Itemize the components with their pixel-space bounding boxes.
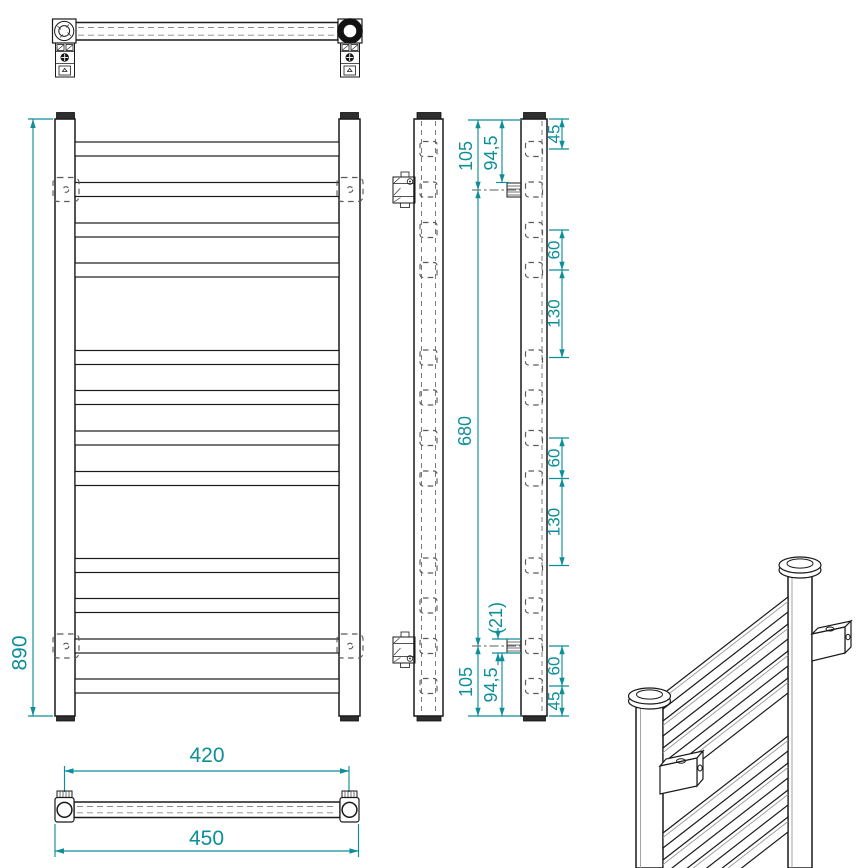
- dim-bottom-centers-label: 420: [189, 744, 224, 767]
- side-left-bracket-top: [393, 172, 415, 208]
- bottom-view-rail: [74, 802, 340, 818]
- dim-chain-label-2: 130: [544, 299, 563, 327]
- front-left-cap: [57, 113, 75, 120]
- dim-side-top-offset-label: 105: [456, 141, 476, 171]
- persp-right-bracket: [812, 621, 851, 661]
- dim-side-top-edge-label: 94,5: [481, 135, 501, 170]
- dim-bottom-centers: 420: [65, 744, 350, 792]
- bottom-right-connection: [340, 791, 359, 822]
- front-right-post: [339, 119, 360, 716]
- dim-chain-label-3: 60: [544, 449, 563, 468]
- dim-chain-label-6: 45: [544, 692, 563, 711]
- side-dimensions-middle: 105 94,5 680 105 94,5 (21): [455, 120, 522, 716]
- persp-right-cap: [779, 557, 821, 578]
- dim-chain-label-5: 60: [544, 657, 563, 676]
- dim-side-bottom-offset-label: 105: [456, 667, 476, 697]
- persp-rungs: [663, 597, 788, 868]
- dim-side-bottom-edge-label: 94,5: [481, 667, 501, 702]
- top-view-rail: [75, 23, 338, 41]
- dim-tube-size-label: (21): [486, 602, 506, 634]
- top-view-right-bracket: [341, 43, 360, 77]
- top-view: [53, 19, 363, 77]
- front-view: 890: [9, 113, 363, 722]
- front-right-foot: [341, 716, 359, 721]
- front-hidden-wall-brackets: [53, 178, 363, 659]
- top-view-left-post-cap: [53, 19, 77, 43]
- dim-front-height: 890: [9, 119, 53, 716]
- perspective-view: [629, 557, 852, 868]
- front-left-foot: [57, 716, 75, 721]
- dim-chain-label-0: 45: [544, 125, 563, 144]
- side-left-bracket-bottom: [393, 632, 415, 668]
- front-right-cap: [341, 113, 359, 120]
- front-left-post: [55, 119, 75, 716]
- side-view-left-post: [393, 113, 443, 722]
- dim-chain-label-4: 130: [544, 508, 563, 536]
- side-dimensions-chain: 45 60 130 60 130 60 45: [544, 119, 569, 716]
- dim-chain-label-1: 60: [544, 241, 563, 260]
- drawing-canvas: 890: [0, 0, 868, 868]
- top-view-left-bracket: [56, 43, 75, 77]
- dim-bottom-overall: 450: [55, 824, 359, 857]
- bottom-view: 420 450: [55, 744, 359, 857]
- bottom-left-connection: [55, 791, 74, 822]
- top-view-right-post-cap: [338, 19, 363, 44]
- side-view-right-post: [472, 113, 547, 722]
- dim-front-height-label: 890: [9, 635, 32, 670]
- dim-side-span-label: 680: [455, 416, 475, 446]
- persp-left-cap: [629, 688, 671, 709]
- dim-bottom-overall-label: 450: [189, 827, 224, 850]
- front-rungs: [75, 142, 339, 693]
- technical-drawing-sheet: 890: [0, 0, 868, 868]
